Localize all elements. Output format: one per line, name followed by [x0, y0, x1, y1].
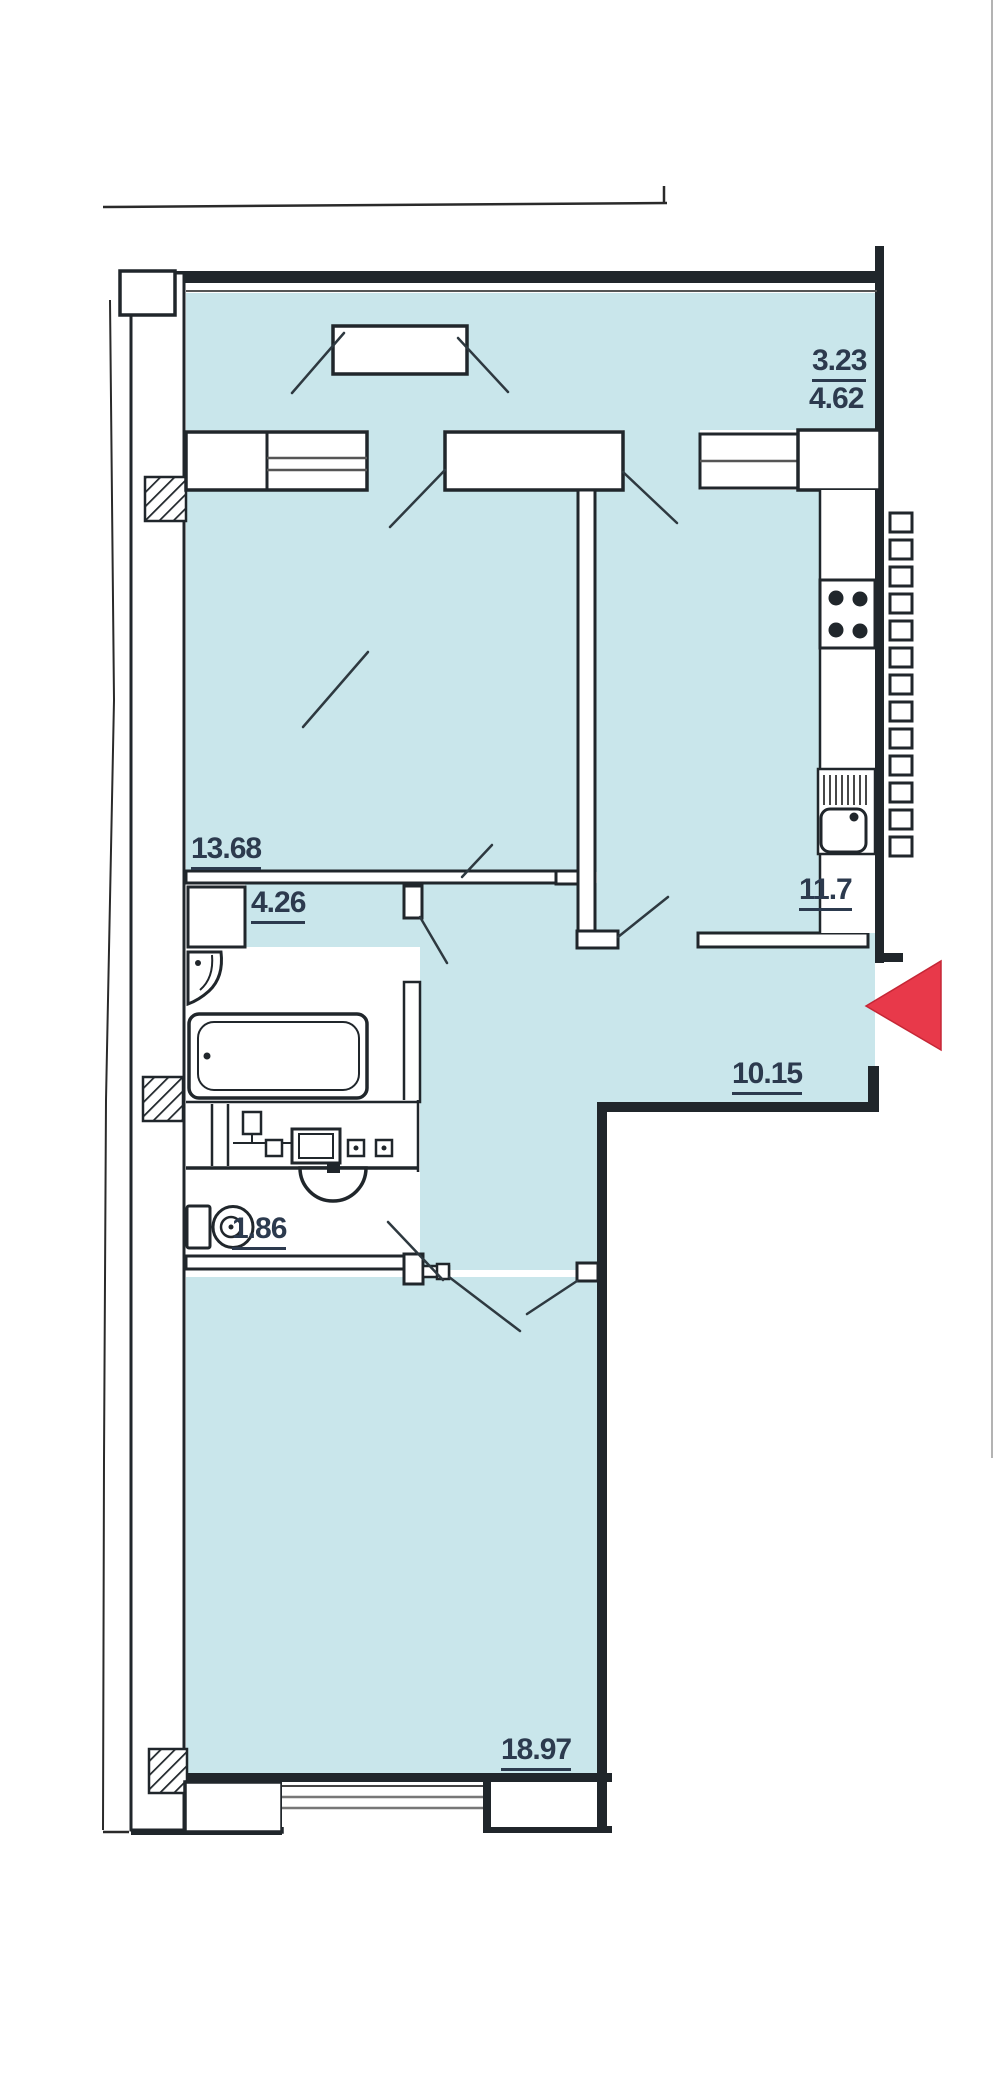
kitchen-sink: [818, 769, 875, 854]
wash-basin: [188, 952, 222, 1004]
floor-plan-page: 3.23 4.62 13.68 4.26 11.7 10.15 1.86 18.…: [0, 0, 1000, 2081]
bedroom-window-wall: [185, 1782, 597, 1832]
area-label-hallway: 4.26: [251, 888, 305, 924]
bathroom-closet-block: [188, 887, 245, 947]
balcony-door-unit: [333, 326, 467, 374]
area-label-loggia-reduced: 3.23: [812, 346, 866, 382]
exterior-ladder: [890, 513, 912, 856]
area-label-bedroom: 18.97: [501, 1735, 571, 1771]
area-label-loggia: 4.62: [809, 384, 863, 414]
laundry-counter: [186, 1100, 419, 1172]
floor-plan-drawing: [0, 0, 1000, 2081]
kitchen-counter: [820, 490, 875, 933]
kitchen-stove: [820, 580, 875, 648]
area-label-corridor: 10.15: [732, 1059, 802, 1095]
entrance-arrow-icon: [866, 961, 941, 1050]
area-label-living-room: 13.68: [191, 834, 261, 870]
semicircular-basin: [300, 1164, 366, 1201]
area-label-kitchen: 11.7: [799, 875, 852, 911]
bathtub: [189, 1014, 367, 1098]
area-label-wc: 1.86: [232, 1214, 286, 1250]
